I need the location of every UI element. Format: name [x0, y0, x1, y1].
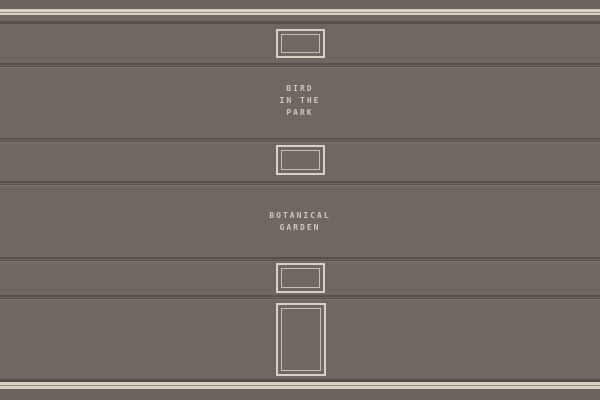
painting-frame-2[interactable] [276, 145, 325, 175]
plaque-botanical-garden: BOTANICAL GARDEN [0, 210, 600, 234]
plaque-line: GARDEN [0, 222, 600, 234]
wall-groove [0, 295, 600, 300]
painting-frame-1-liner [281, 34, 320, 53]
crown-molding-stripe [0, 13, 600, 15]
plaque-line: PARK [0, 107, 600, 119]
plaque-line: IN THE [0, 95, 600, 107]
tall-door-frame-liner [281, 308, 321, 371]
crown-shadow-line [0, 21, 600, 24]
wall-groove [0, 138, 600, 143]
painting-frame-3-liner [281, 268, 320, 288]
wall-bottom-edge [0, 389, 600, 400]
wall-groove [0, 257, 600, 262]
gallery-wall-scene: BIRD IN THE PARK BOTANICAL GARDEN [0, 0, 600, 400]
plaque-line: BOTANICAL [0, 210, 600, 222]
plaque-bird-in-the-park: BIRD IN THE PARK [0, 83, 600, 119]
painting-frame-3[interactable] [276, 263, 325, 293]
painting-frame-1[interactable] [276, 29, 325, 58]
plaque-line: BIRD [0, 83, 600, 95]
wall-groove [0, 63, 600, 68]
wall-top-edge [0, 0, 600, 9]
painting-frame-2-liner [281, 150, 320, 170]
tall-door-frame[interactable] [276, 303, 326, 376]
wall-groove [0, 181, 600, 186]
